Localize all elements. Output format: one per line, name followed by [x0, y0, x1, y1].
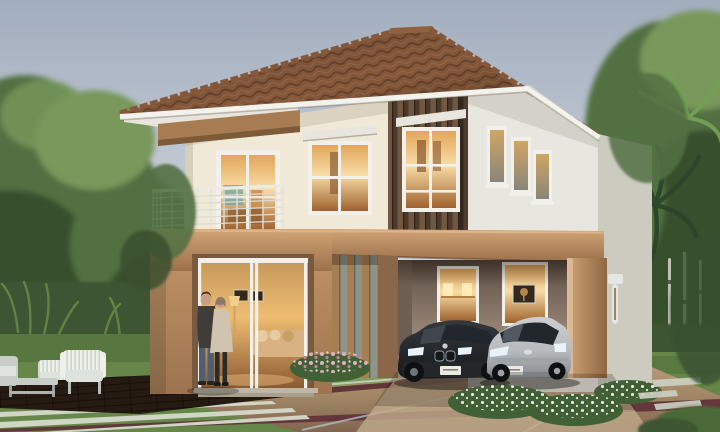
- roof-ridge-top: [392, 29, 431, 31]
- sofa: [252, 330, 308, 357]
- small-window-2: [509, 137, 533, 196]
- wood-slat-tower: [388, 89, 468, 236]
- carport-pillar: [567, 258, 607, 378]
- small-window-3: [531, 150, 554, 205]
- pink-flower-bed: [290, 351, 370, 382]
- house-rendering: [0, 0, 720, 432]
- small-window-1: [485, 126, 509, 188]
- screen-return-wall: [378, 256, 398, 378]
